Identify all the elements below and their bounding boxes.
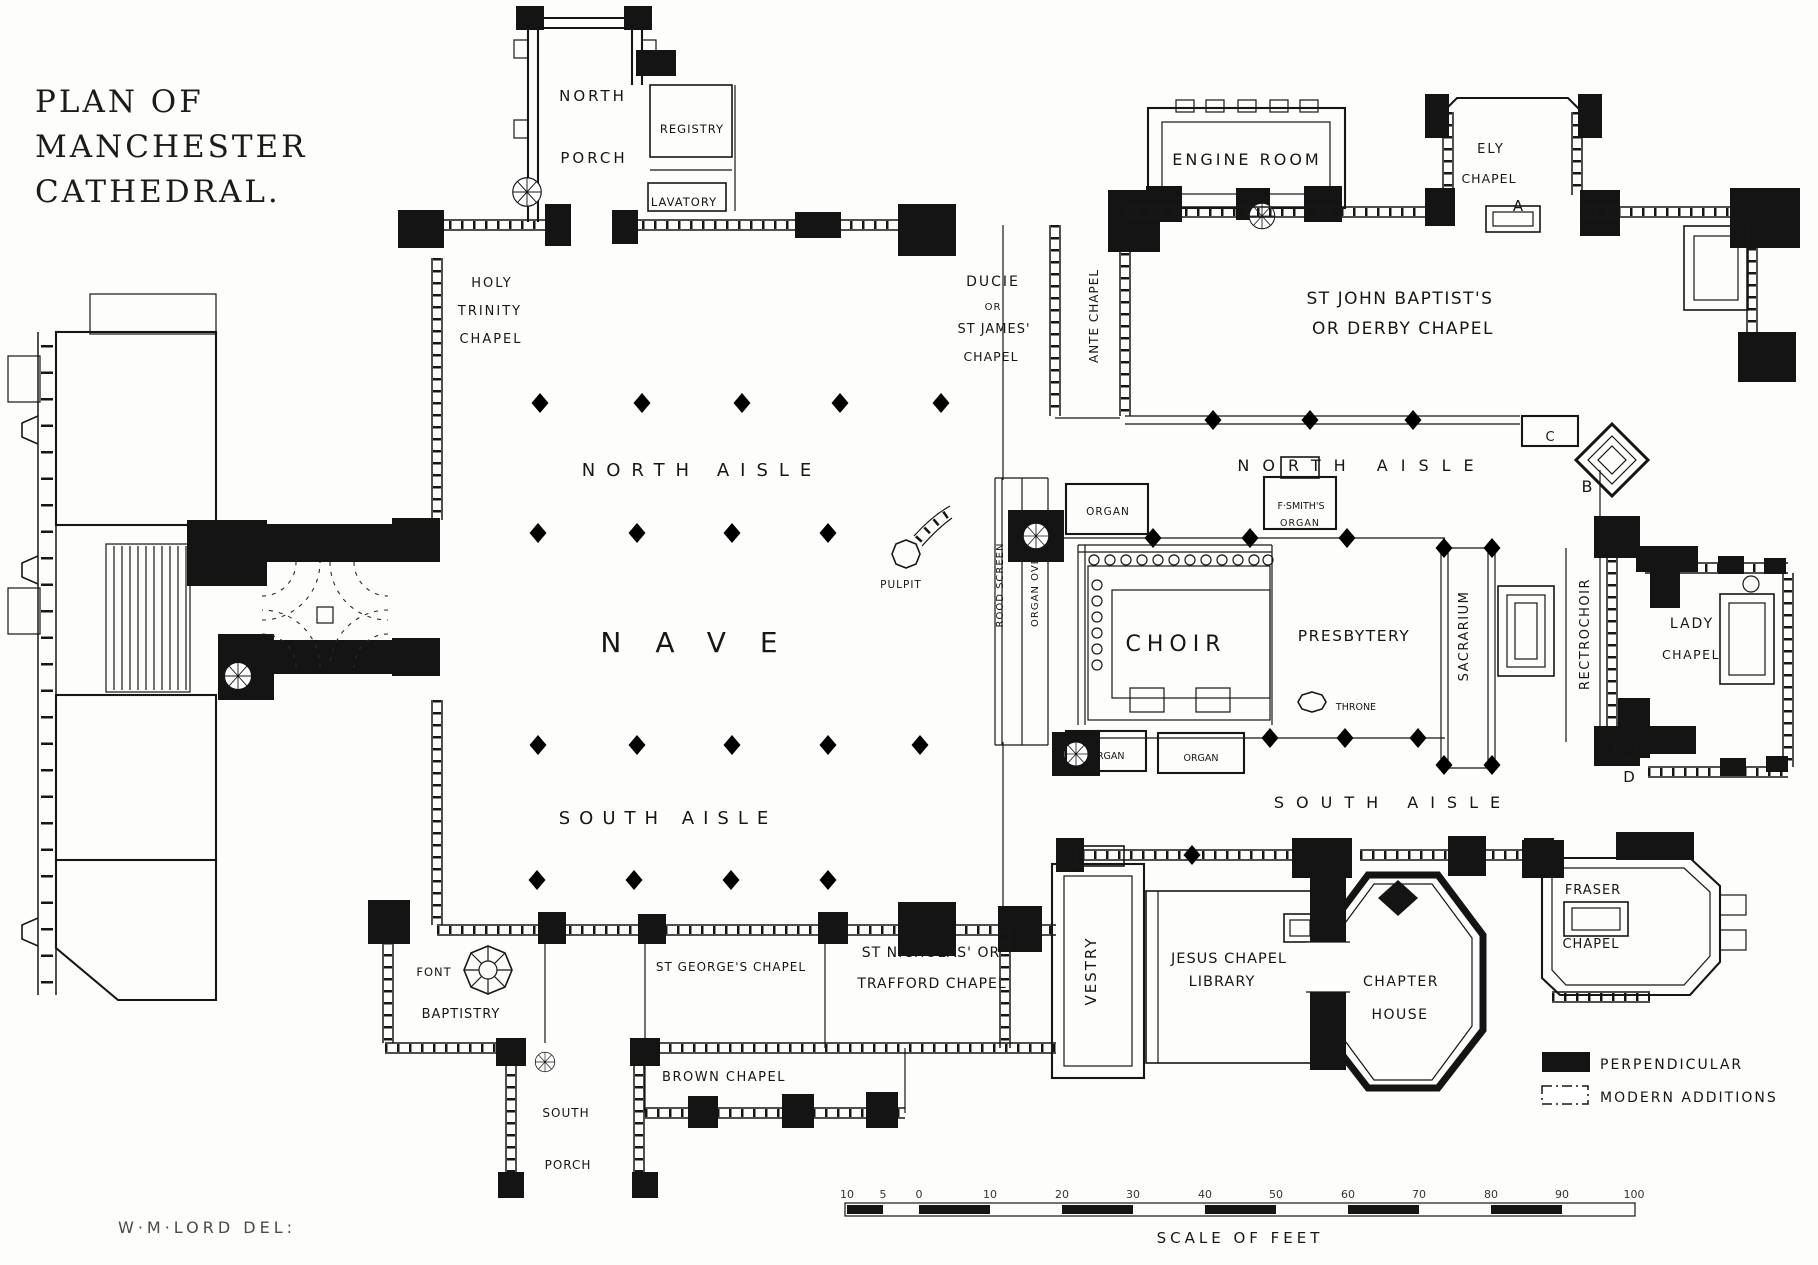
porch-stair-2-icon <box>535 1052 555 1072</box>
label-st-george-s-chapel: ST GEORGE'S CHAPEL <box>656 960 806 974</box>
scale-tick-labels: 1050102030405060708090100 <box>840 1188 1645 1201</box>
room-labels: NORTHPORCHREGISTRYLAVATORYHOLYTRINITYCHA… <box>416 87 1720 1172</box>
title-line-3: CATHEDRAL. <box>35 174 281 210</box>
label-chapel: CHAPEL <box>1461 171 1516 186</box>
label-jesus-chapel: JESUS CHAPEL <box>1170 951 1287 967</box>
label-st-john-baptist-s: ST JOHN BAPTIST'S <box>1307 289 1494 309</box>
label-chapel: CHAPEL <box>963 349 1018 364</box>
label-brown-chapel: BROWN CHAPEL <box>662 1070 786 1085</box>
scale-tick-0: 0 <box>916 1188 923 1201</box>
scale-tick-50: 50 <box>1269 1188 1283 1201</box>
label-baptistry: BAPTISTRY <box>422 1007 501 1022</box>
label-south-aisle: SOUTH AISLE <box>559 808 777 829</box>
label-fraser: FRASER <box>1565 883 1621 898</box>
label-ante-chapel: ANTE CHAPEL <box>1087 269 1101 363</box>
label-sacrarium: SACRARIUM <box>1457 591 1472 682</box>
ante-chapel-walls <box>1050 190 1160 418</box>
label-porch: PORCH <box>560 149 627 167</box>
label-library: LIBRARY <box>1189 974 1256 990</box>
legend-swatch-modern-additions <box>1542 1086 1588 1104</box>
label-rood-screen: ROOD SCREEN <box>995 543 1006 628</box>
choir-stair-nw-icon <box>1023 523 1049 549</box>
sacrarium <box>1436 538 1555 775</box>
label-chapter: CHAPTER <box>1363 974 1439 990</box>
title-line-2: MANCHESTER <box>35 129 308 165</box>
registry-lavatory <box>648 85 735 211</box>
label-rectrochoir: RECTROCHOIR <box>1578 578 1593 690</box>
label-north-aisle: NORTH AISLE <box>582 460 823 481</box>
north-porch <box>513 6 676 222</box>
label-south: SOUTH <box>542 1106 589 1120</box>
scale-tick-40: 40 <box>1198 1188 1212 1201</box>
plan-drawing: PLAN OF MANCHESTER CATHEDRAL. <box>0 0 1818 1265</box>
scale-tick-60: 60 <box>1341 1188 1355 1201</box>
label-organ-over: ORGAN OVER <box>1030 549 1041 627</box>
chapter-pier-diamond <box>1378 880 1418 916</box>
label-choir: CHOIR <box>1126 632 1227 657</box>
label-st-james: ST JAMES' <box>957 322 1030 337</box>
scale-tick-90: 90 <box>1555 1188 1569 1201</box>
label-or-derby-chapel: OR DERBY CHAPEL <box>1312 319 1494 339</box>
label-lavatory: LAVATORY <box>651 195 717 209</box>
label-organ: ORGAN <box>1183 753 1218 764</box>
label-c: C <box>1545 430 1554 445</box>
plan-title: PLAN OF MANCHESTER CATHEDRAL. <box>35 84 308 210</box>
manchester-cathedral-plan: PLAN OF MANCHESTER CATHEDRAL. <box>0 0 1818 1265</box>
label-vestry: VESTRY <box>1082 936 1100 1005</box>
tower-crossing <box>187 518 440 700</box>
scale-tick-30: 30 <box>1126 1188 1140 1201</box>
label-north: NORTH <box>559 87 627 105</box>
label-chapel: CHAPEL <box>459 332 522 347</box>
label-font: FONT <box>416 965 451 979</box>
label-lady: LADY <box>1670 616 1714 632</box>
scale-tick-100: 100 <box>1624 1188 1645 1201</box>
scale-tick-10: 10 <box>840 1188 854 1201</box>
label-house: HOUSE <box>1371 1007 1428 1023</box>
label-f-smith-s: F·SMITH'S <box>1277 501 1324 512</box>
legend-label-modern-additions: MODERN ADDITIONS <box>1600 1090 1778 1106</box>
pulpit-symbol <box>892 506 952 568</box>
scale-caption: SCALE OF FEET <box>1157 1229 1324 1247</box>
scale-tick-80: 80 <box>1484 1188 1498 1201</box>
scale-tick-5: 5 <box>880 1188 887 1201</box>
legend: PERPENDICULAR MODERN ADDITIONS <box>1542 1052 1778 1106</box>
fraser-chapel <box>1522 832 1746 1002</box>
label-porch: PORCH <box>545 1158 592 1172</box>
label-throne: THRONE <box>1335 702 1376 713</box>
label-nave: NAVE <box>600 626 811 659</box>
title-line-1: PLAN OF <box>35 84 204 120</box>
label-organ: ORGAN <box>1280 518 1320 529</box>
west-annex <box>8 294 216 1000</box>
label-organ: ORGAN <box>1086 506 1130 518</box>
label-ducie: DUCIE <box>966 274 1020 290</box>
label-engine-room: ENGINE ROOM <box>1172 150 1321 169</box>
label-st-nicholas-or: ST NICHOLAS' OR <box>862 945 1000 961</box>
legend-label-perpendicular: PERPENDICULAR <box>1600 1057 1743 1073</box>
scale-bar: 1050102030405060708090100 SCALE OF FEET <box>840 1188 1645 1247</box>
porch-stair-icon <box>513 178 542 207</box>
label-north-aisle: NORTH AISLE <box>1237 456 1486 475</box>
label-organ: ORGAN <box>1089 751 1124 762</box>
label-registry: REGISTRY <box>660 122 724 136</box>
label-trinity: TRINITY <box>457 304 522 319</box>
west-steps <box>106 544 190 692</box>
font-symbol <box>464 946 512 994</box>
legend-swatch-perpendicular <box>1542 1052 1590 1072</box>
label-presbytery: PRESBYTERY <box>1298 627 1411 645</box>
label-chapel: CHAPEL <box>1662 647 1720 662</box>
label-pulpit: PULPIT <box>880 579 922 591</box>
label-ely: ELY <box>1477 142 1505 157</box>
scale-tick-10: 10 <box>983 1188 997 1201</box>
scale-tick-70: 70 <box>1412 1188 1426 1201</box>
choir-stair-sw-icon <box>1064 742 1088 766</box>
label-b: B <box>1582 477 1593 496</box>
label-south-aisle: SOUTH AISLE <box>1274 793 1512 812</box>
derby-chapel <box>1125 188 1800 496</box>
label-d: D <box>1623 768 1635 786</box>
label-or: OR <box>985 302 1002 313</box>
scale-tick-20: 20 <box>1055 1188 1069 1201</box>
throne-symbol <box>1298 692 1326 712</box>
spiral-stair-icon <box>225 663 252 690</box>
label-chapel: CHAPEL <box>1562 937 1619 952</box>
label-trafford-chapel: TRAFFORD CHAPEL <box>856 976 1006 992</box>
label-a: A <box>1513 197 1524 215</box>
presbytery <box>1298 692 1326 712</box>
label-holy: HOLY <box>471 276 512 291</box>
attribution: W·M·LORD DEL: <box>118 1218 296 1237</box>
